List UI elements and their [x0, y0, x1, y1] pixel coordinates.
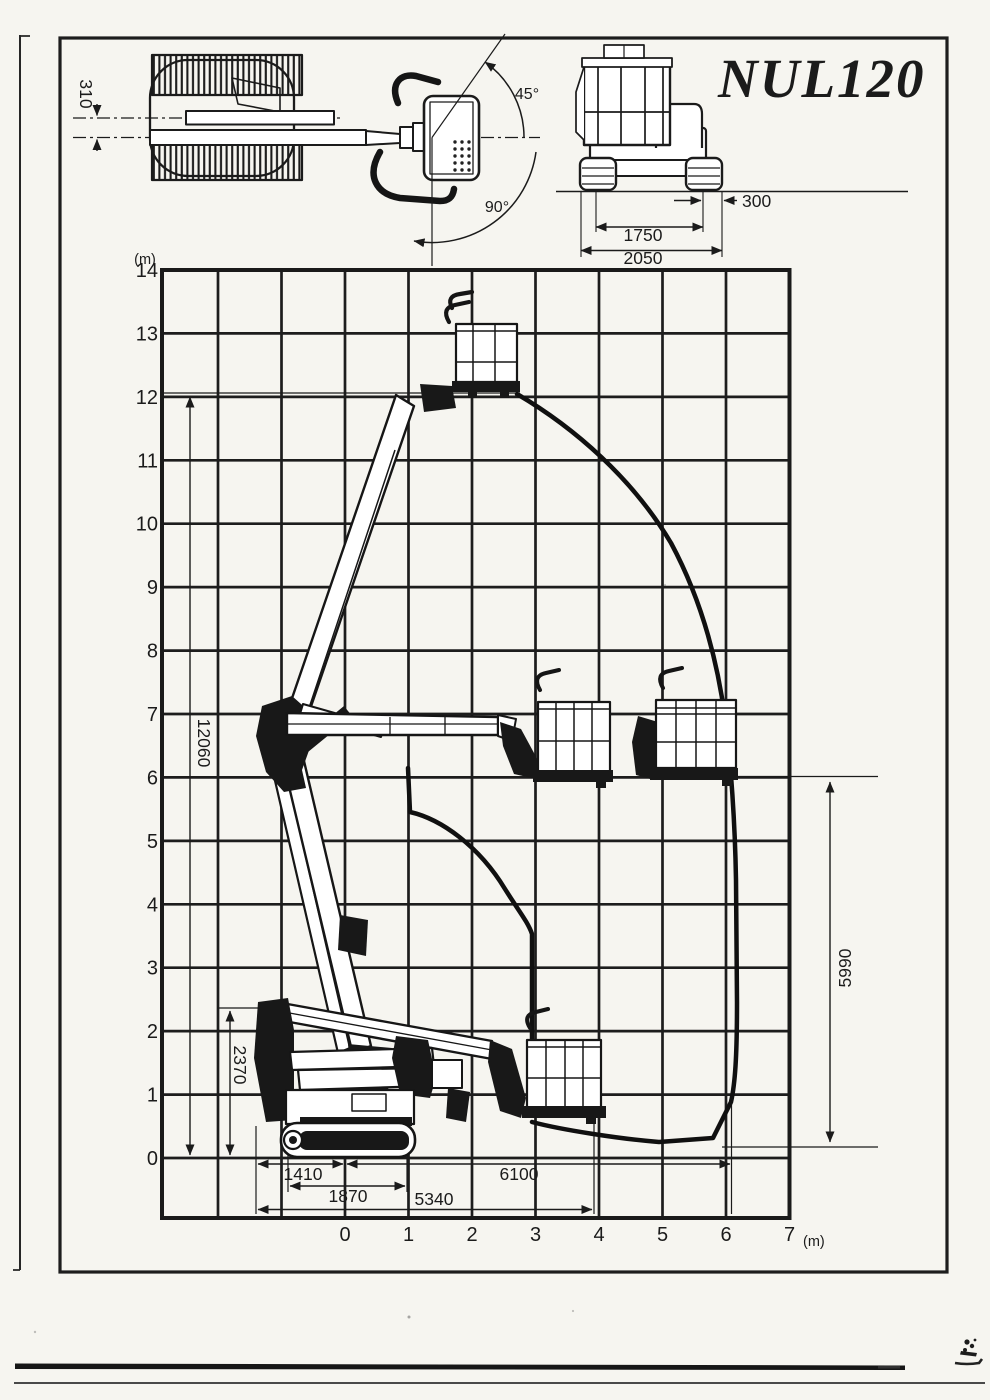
y-tick: 10 [136, 514, 158, 536]
y-tick: 9 [147, 577, 158, 599]
jib-low [488, 1040, 526, 1118]
basket-mid-2-floor [650, 768, 738, 780]
folded-rotator [446, 1088, 470, 1122]
y-tick: 3 [147, 958, 158, 980]
upper-boom-inner-line [300, 450, 395, 735]
dim-5990-label: 5990 [835, 948, 855, 987]
basket-mid-1-handle [537, 670, 559, 690]
model-title: NUL120 [717, 48, 926, 109]
dim-2370-label: 2370 [230, 1046, 250, 1085]
basket-low-foot [586, 1118, 596, 1124]
x-tick: 7 [784, 1224, 795, 1246]
dim-2050-label: 2050 [624, 248, 663, 268]
page-edge-ticks [13, 36, 30, 1270]
basket-top-foot-2 [500, 392, 509, 398]
x-axis-unit: (m) [803, 1234, 825, 1250]
track-front-left [580, 158, 616, 190]
platform-rotator-top [420, 384, 456, 412]
track-front-right [686, 158, 722, 190]
x-tick: 2 [466, 1224, 477, 1246]
basket-top-foot-1 [468, 392, 477, 398]
dim-12060-label: 12060 [194, 719, 214, 768]
basket-low-floor [522, 1106, 606, 1118]
x-tick: 6 [720, 1224, 731, 1246]
slew-angle-45-label: 45° [515, 86, 539, 103]
scanned-spec-sheet: NUL120 310 45° 90° [0, 0, 990, 1400]
pose-horizontal [287, 668, 738, 788]
y-tick: 7 [147, 704, 158, 726]
dim-310-label: 310 [76, 79, 96, 108]
x-tick: 1 [403, 1224, 414, 1246]
x-tick: 3 [530, 1224, 541, 1246]
y-tick: 13 [136, 323, 158, 345]
drive-sprocket-hub [289, 1136, 297, 1144]
basket-at-max-height [456, 324, 517, 382]
bottom-rule-heavy [15, 1364, 905, 1371]
y-tick: 6 [147, 767, 158, 789]
jib-plan-link [400, 127, 413, 148]
y-tick: 12 [136, 387, 158, 409]
dim-5340-label: 5340 [415, 1189, 454, 1209]
boom-plan-lower [150, 130, 366, 145]
basket-mid-1-floor [533, 770, 613, 782]
y-tick: 5 [147, 831, 158, 853]
dim-1750-label: 1750 [624, 225, 663, 245]
y-tick: 0 [147, 1148, 158, 1170]
basket-low [527, 1040, 601, 1108]
ink-stamp-mark [960, 1339, 977, 1357]
dim-300-label: 300 [742, 191, 771, 211]
boom-mid-link [338, 915, 368, 956]
x-axis-labels: 0 1 2 3 4 5 6 7 (m) [339, 1224, 824, 1250]
basket-top-floor [452, 381, 520, 392]
bottom-rule-smudge [878, 1366, 900, 1369]
y-tick: 11 [137, 450, 158, 472]
basket-mid-1-foot [596, 782, 606, 788]
x-tick: 5 [657, 1224, 668, 1246]
basket-front [584, 60, 670, 145]
track-tread-band [299, 1131, 409, 1150]
y-tick: 2 [147, 1021, 158, 1043]
x-tick: 0 [339, 1224, 350, 1246]
dim-6100-label: 6100 [500, 1164, 539, 1184]
y-tick: 1 [147, 1085, 158, 1107]
basket-mid-2-foot [722, 780, 732, 786]
y-tick: 4 [147, 894, 158, 916]
y-tick: 8 [147, 641, 158, 663]
basket-front-top-rail [582, 58, 672, 67]
folded-jib-bracket [432, 1060, 462, 1088]
boom-plan-head [366, 131, 400, 145]
y-tick: 14 [136, 260, 158, 282]
engine-hood [352, 1094, 386, 1111]
boom-plan-upper [186, 111, 334, 125]
y-axis-labels: (m) 14 13 12 11 10 9 8 7 6 5 4 3 2 1 0 [134, 252, 158, 1170]
basket-front-side-panel [576, 67, 584, 140]
slew-angle-90-label: 90° [485, 199, 509, 216]
bottom-rule-tail [955, 1359, 982, 1364]
x-tick: 4 [593, 1224, 604, 1246]
platform-rotator-plan [413, 123, 424, 151]
top-view-drawing: 310 45° 90° [73, 34, 540, 266]
pose-elevated [256, 292, 520, 1092]
dim-1870-label: 1870 [329, 1186, 368, 1206]
dim-1410-label: 1410 [284, 1164, 323, 1184]
diagram-canvas: NUL120 310 45° 90° [0, 0, 990, 1400]
